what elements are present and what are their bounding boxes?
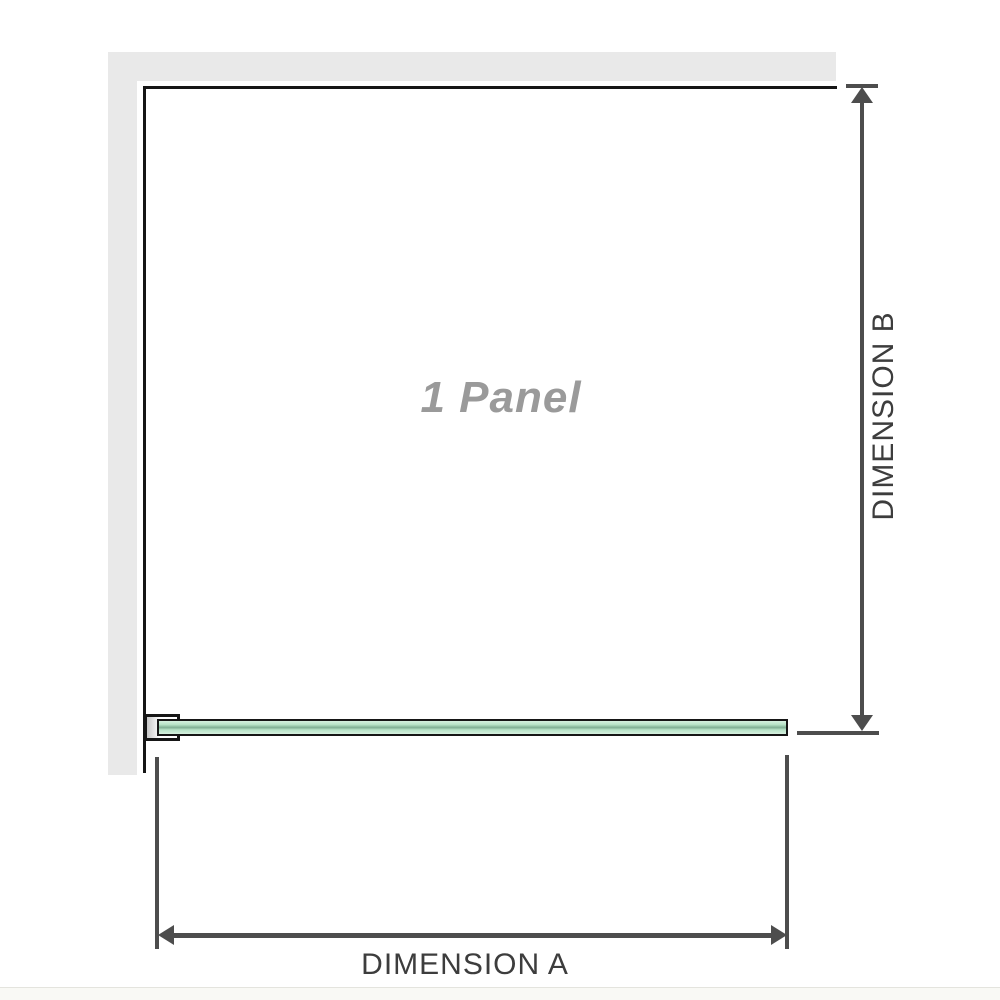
arrow-up-icon [851, 87, 873, 103]
arrow-right-icon [771, 925, 787, 945]
wall-left [108, 52, 137, 775]
dimension-a-label: DIMENSION A [361, 948, 569, 982]
dimension-a-right-extension-line [785, 755, 789, 949]
diagram-canvas: 1 Panel DIMENSION B DIMENSION A [0, 0, 1000, 1000]
dimension-a-line [170, 933, 776, 938]
dimension-a-left-extension-line [155, 757, 159, 949]
panel-outline-left [143, 86, 146, 773]
panel-label: 1 Panel [420, 373, 581, 423]
arrow-left-icon [158, 925, 174, 945]
dimension-b-bottom-extension-line [797, 731, 879, 735]
dimension-b-label: DIMENSION B [867, 311, 901, 520]
dimension-b-line [860, 101, 864, 717]
wall-top [108, 52, 836, 81]
glass-panel-bar [157, 719, 788, 736]
arrow-down-icon [851, 715, 873, 731]
panel-outline-top [143, 86, 837, 89]
bottom-edge-strip [0, 987, 1000, 1000]
